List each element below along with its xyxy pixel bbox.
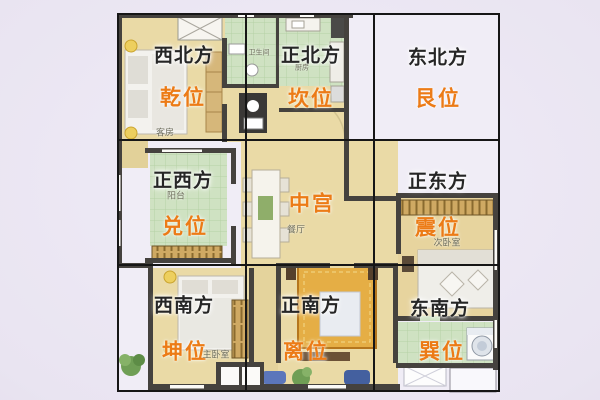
- room-label-dining-room: 餐厅: [287, 227, 305, 236]
- west-balcony-cabinet: [152, 246, 222, 260]
- position-label-kan: 坎位: [288, 89, 334, 110]
- direction-label-southwest: 西南方: [154, 297, 214, 316]
- room-label-west-balcony: 阳台: [167, 193, 185, 202]
- direction-label-west: 正西方: [153, 172, 213, 191]
- position-label-zhen: 震位: [415, 218, 461, 239]
- direction-label-northeast: 东北方: [408, 49, 468, 68]
- position-label-li: 离位: [283, 342, 329, 363]
- room-label-master-bedroom: 主卧室: [202, 352, 229, 361]
- room-label-second-bedroom: 次卧室: [433, 240, 460, 249]
- room-label-bathroom: 卫生间: [249, 50, 270, 57]
- room-label-guest-bedroom: 客房: [156, 130, 174, 139]
- direction-label-north: 正北方: [281, 47, 341, 66]
- fengshui-floorplan-image: 西北方 正北方 东北方 正西方 正东方 西南方 正南方 东南方 乾位 坎位 艮位…: [0, 0, 600, 400]
- direction-label-southeast: 东南方: [410, 300, 470, 319]
- position-label-qian: 乾位: [160, 88, 206, 109]
- washing-machine-icon: [467, 328, 497, 360]
- direction-label-northwest: 西北方: [154, 47, 214, 66]
- direction-label-south: 正南方: [281, 297, 341, 316]
- position-label-gen: 艮位: [415, 89, 461, 110]
- position-label-dui: 兑位: [162, 217, 208, 238]
- position-label-zhonggong: 中宫: [289, 194, 335, 215]
- room-label-kitchen: 厨房: [295, 65, 309, 72]
- position-label-xun: 巽位: [419, 342, 465, 363]
- position-label-kun: 坤位: [162, 342, 208, 363]
- direction-label-east: 正东方: [408, 173, 468, 192]
